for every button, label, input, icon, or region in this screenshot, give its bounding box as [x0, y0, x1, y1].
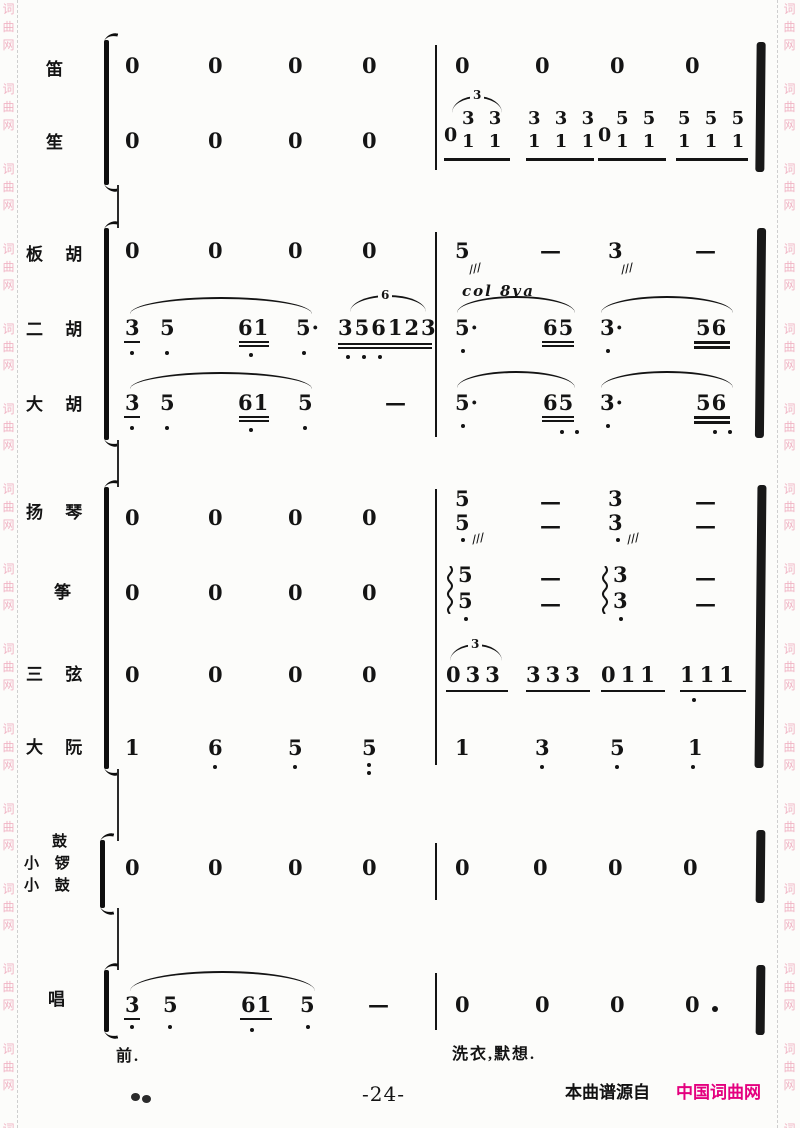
rest-note: 0: [288, 53, 304, 78]
watermark-char: 网: [2, 279, 14, 291]
dash-note: —: [695, 565, 717, 590]
tuplet-number: 6: [378, 288, 392, 302]
instrument-label-xiaogu: 小 鼓: [24, 874, 76, 895]
tuplet-number: 3: [468, 637, 482, 651]
watermark-char: 曲: [783, 181, 795, 193]
watermark-char: 网: [2, 519, 14, 531]
octave-dot: [130, 426, 134, 430]
octave-dot: [606, 349, 610, 353]
watermark-char: 曲: [783, 981, 795, 993]
note: 1: [125, 735, 141, 760]
watermark-char: 网: [2, 599, 14, 611]
rest-note: 0: [288, 580, 304, 605]
chord-top: 3: [613, 562, 629, 587]
barline: [435, 489, 437, 765]
instrument-label-xiaoluo: 小 锣: [24, 852, 76, 873]
system-end-bar: [755, 42, 765, 172]
beam: [542, 345, 574, 347]
beam: [239, 345, 269, 347]
dash-note: —: [540, 513, 562, 538]
watermark-char: 网: [2, 999, 14, 1011]
octave-dot: [346, 355, 350, 359]
watermark-char: 词: [2, 323, 14, 335]
tremolo-mark: ///: [626, 531, 641, 547]
watermark-char: 词: [783, 1043, 795, 1055]
margin-dashed-line-right: [777, 0, 778, 1128]
rest-note: 0: [208, 580, 224, 605]
chord-lead-rest: 0: [444, 124, 458, 146]
rest-note: 0: [533, 855, 549, 880]
score-page: 词曲网词曲网词曲网词曲网词曲网词曲网词曲网词曲网词曲网词曲网词曲网词曲网词曲网词…: [0, 0, 800, 1128]
octave-dot: [367, 763, 371, 767]
augmentation-dot: [712, 1006, 718, 1012]
rest-note: 0: [685, 992, 701, 1017]
octave-dot: [728, 430, 732, 434]
octave-dot: [165, 426, 169, 430]
note: 6: [208, 735, 224, 760]
note: 61: [238, 315, 269, 340]
watermark-char: 词: [2, 723, 14, 735]
instrument-label-banhu: 板 胡: [26, 240, 91, 265]
beam: [601, 690, 665, 692]
note: 356123: [338, 315, 438, 340]
watermark-char: 曲: [783, 661, 795, 673]
watermark-column-left: 词曲网词曲网词曲网词曲网词曲网词曲网词曲网词曲网词曲网词曲网词曲网词曲网词曲网词…: [1, 0, 16, 1128]
octave-dot: [606, 424, 610, 428]
system-connector-line: [117, 908, 119, 970]
dash-note: —: [695, 238, 717, 263]
note: 3·: [600, 315, 624, 340]
system-connector-line: [117, 769, 119, 841]
beam: [338, 343, 432, 345]
beam: [124, 416, 140, 418]
chord-lead-rest: 0: [598, 124, 612, 146]
system-bracket: [104, 487, 109, 769]
rest-note: 0: [362, 505, 378, 530]
margin-dashed-line-left: [17, 0, 18, 1128]
note: 3: [125, 390, 141, 415]
dash-note: —: [385, 390, 407, 415]
beam: [694, 416, 730, 419]
tremolo-mark: ///: [471, 531, 486, 547]
chord-bottom: 1 1 1: [528, 133, 598, 151]
rest-note: 0: [208, 128, 224, 153]
watermark-char: 词: [783, 83, 795, 95]
watermark-char: 网: [2, 919, 14, 931]
rest-note: 0: [288, 855, 304, 880]
chord-bottom: 3: [613, 588, 629, 613]
watermark-char: 曲: [783, 101, 795, 113]
note: 5·: [296, 315, 320, 340]
rest-note: 0: [208, 53, 224, 78]
rest-note: 0: [288, 505, 304, 530]
rest-note: 0: [455, 992, 471, 1017]
octave-dot: [130, 351, 134, 355]
instrument-label-gu: 鼓: [52, 830, 73, 851]
note: 5: [362, 735, 378, 760]
watermark-char: 词: [783, 403, 795, 415]
chord-top: 5 5: [616, 110, 659, 128]
watermark-char: 曲: [783, 1061, 795, 1073]
beam: [676, 158, 748, 161]
watermark-char: 网: [2, 679, 14, 691]
note: 65: [543, 390, 574, 415]
beam: [239, 420, 269, 422]
octave-dot: [165, 351, 169, 355]
chord-bottom: 5: [458, 588, 474, 613]
system-bracket: [104, 228, 109, 440]
watermark-char: 词: [783, 963, 795, 975]
watermark-char: 词: [783, 883, 795, 895]
watermark-char: 曲: [2, 501, 14, 513]
octave-dot: [249, 428, 253, 432]
watermark-char: 网: [2, 199, 14, 211]
chord-top: 5: [458, 562, 474, 587]
note: 3: [608, 238, 624, 263]
chord-top: 5: [455, 486, 471, 511]
beam: [239, 341, 269, 343]
note: 5: [160, 390, 176, 415]
rest-note: 0: [455, 855, 471, 880]
beam: [542, 420, 574, 422]
watermark-char: 词: [783, 3, 795, 15]
rest-note: 0: [125, 128, 141, 153]
octave-dot: [540, 765, 544, 769]
source-prefix: 本曲谱源自: [565, 1078, 650, 1103]
octave-dot: [616, 538, 620, 542]
octave-dot: [168, 1025, 172, 1029]
barline: [435, 973, 437, 1030]
chord-bottom: 3: [608, 510, 624, 535]
system-bracket: [100, 840, 105, 908]
watermark-char: 网: [783, 199, 795, 211]
watermark-char: 曲: [2, 421, 14, 433]
watermark-char: 曲: [783, 501, 795, 513]
beam: [526, 158, 594, 161]
chord-top: 3 3: [462, 110, 505, 128]
beam: [694, 346, 730, 349]
watermark-char: 曲: [2, 101, 14, 113]
watermark-char: 曲: [783, 741, 795, 753]
watermark-column-right: 词曲网词曲网词曲网词曲网词曲网词曲网词曲网词曲网词曲网词曲网词曲网词曲网词曲网词…: [782, 0, 797, 1128]
beam: [542, 416, 574, 418]
note: 5·: [455, 390, 479, 415]
rest-note: 0: [362, 580, 378, 605]
instrument-label-sanxian: 三 弦: [26, 660, 91, 685]
watermark-char: 词: [2, 883, 14, 895]
slur: [130, 372, 312, 389]
watermark-char: 词: [783, 803, 795, 815]
rest-note: 0: [208, 238, 224, 263]
octave-dot: [691, 765, 695, 769]
watermark-char: 曲: [783, 421, 795, 433]
dash-note: —: [695, 489, 717, 514]
note: 56: [696, 390, 727, 415]
dash-note: —: [695, 591, 717, 616]
lyric-text: 洗衣,默想.: [452, 1040, 536, 1064]
watermark-char: 词: [783, 323, 795, 335]
arpeggio-mark: [446, 566, 454, 614]
watermark-char: 曲: [2, 581, 14, 593]
watermark-char: 词: [783, 483, 795, 495]
note: 3: [535, 735, 551, 760]
note: 65: [543, 315, 574, 340]
rest-note: 0: [208, 662, 224, 687]
dash-note: —: [540, 591, 562, 616]
chord-bottom: 1 1: [616, 133, 659, 151]
note: 3: [125, 992, 141, 1017]
watermark-char: 网: [783, 279, 795, 291]
chord-top: 3: [608, 486, 624, 511]
note: 1: [688, 735, 704, 760]
note: 111: [680, 662, 739, 687]
instrument-label-sheng: 笙: [46, 128, 72, 153]
note: 033: [446, 662, 505, 687]
watermark-char: 词: [2, 803, 14, 815]
watermark-char: 网: [2, 839, 14, 851]
rest-note: 0: [362, 128, 378, 153]
rest-note: 0: [362, 238, 378, 263]
octave-dot: [303, 426, 307, 430]
rest-note: 0: [125, 580, 141, 605]
beam: [240, 1018, 272, 1020]
watermark-char: 曲: [2, 901, 14, 913]
instrument-label-di: 笛: [46, 55, 72, 80]
system-bracket: [104, 970, 109, 1032]
print-smudge: [142, 1095, 151, 1103]
chord-bottom: 5: [455, 510, 471, 535]
rest-note: 0: [455, 53, 471, 78]
tremolo-mark: ///: [620, 261, 635, 277]
watermark-char: 曲: [783, 821, 795, 833]
watermark-char: 词: [2, 243, 14, 255]
dash-note: —: [540, 489, 562, 514]
dash-note: —: [540, 565, 562, 590]
tremolo-mark: ///: [468, 261, 483, 277]
watermark-char: 词: [2, 963, 14, 975]
watermark-char: 曲: [783, 261, 795, 273]
note: 5: [610, 735, 626, 760]
octave-dot: [615, 765, 619, 769]
rest-note: 0: [362, 53, 378, 78]
watermark-char: 曲: [783, 341, 795, 353]
watermark-char: 词: [2, 163, 14, 175]
rest-note: 0: [683, 855, 699, 880]
watermark-char: 词: [783, 643, 795, 655]
system-end-bar: [756, 830, 766, 903]
instrument-label-zheng: 筝: [54, 578, 80, 603]
watermark-char: 词: [2, 3, 14, 15]
rest-note: 0: [125, 53, 141, 78]
note: 333: [526, 662, 585, 687]
watermark-char: 曲: [2, 261, 14, 273]
watermark-char: 词: [783, 723, 795, 735]
note: 011: [601, 662, 660, 687]
beam: [444, 158, 510, 161]
lyric-text: 前.: [116, 1042, 140, 1066]
chord-bottom: 1 1 1: [678, 133, 748, 151]
note: 5: [298, 390, 314, 415]
watermark-char: 网: [783, 439, 795, 451]
watermark-char: 网: [783, 119, 795, 131]
watermark-char: 网: [783, 1079, 795, 1091]
watermark-char: 词: [783, 563, 795, 575]
octave-dot: [560, 430, 564, 434]
watermark-char: 曲: [783, 581, 795, 593]
watermark-char: 网: [2, 39, 14, 51]
octave-dot: [362, 355, 366, 359]
octave-dot: [575, 430, 579, 434]
watermark-char: 词: [783, 163, 795, 175]
watermark-char: 网: [783, 839, 795, 851]
watermark-char: 网: [783, 599, 795, 611]
beam: [680, 690, 746, 692]
octave-dot: [461, 538, 465, 542]
note: 5: [163, 992, 179, 1017]
rest-note: 0: [125, 855, 141, 880]
beam: [124, 1018, 140, 1020]
note: 61: [238, 390, 269, 415]
chord-top: 5 5 5: [678, 110, 748, 128]
barline: [435, 843, 437, 900]
system-bracket: [104, 40, 109, 185]
octave-dot: [213, 765, 217, 769]
chord-bottom: 1 1: [462, 133, 505, 151]
instrument-label-yangqin: 扬 琴: [26, 498, 91, 523]
note: 5·: [455, 315, 479, 340]
watermark-char: 曲: [2, 21, 14, 33]
page-number: -24-: [362, 1082, 405, 1106]
rest-note: 0: [208, 505, 224, 530]
dash-note: —: [368, 992, 390, 1017]
instrument-label-daruan: 大 阮: [26, 733, 91, 758]
watermark-char: 曲: [2, 341, 14, 353]
watermark-char: 曲: [2, 661, 14, 673]
beam: [694, 341, 730, 344]
print-smudge: [131, 1093, 140, 1101]
watermark-char: 网: [2, 359, 14, 371]
note: 1: [455, 735, 471, 760]
watermark-char: 网: [2, 119, 14, 131]
arpeggio-mark: [601, 566, 609, 614]
watermark-char: 词: [2, 1043, 14, 1055]
watermark-char: 词: [2, 563, 14, 575]
note: 61: [241, 992, 272, 1017]
system-end-bar: [756, 965, 766, 1035]
watermark-char: 网: [783, 919, 795, 931]
octave-dot: [306, 1025, 310, 1029]
rest-note: 0: [288, 128, 304, 153]
slur: [130, 297, 312, 314]
note: 5: [455, 238, 471, 263]
watermark-char: 网: [783, 519, 795, 531]
octave-dot: [249, 353, 253, 357]
watermark-char: 曲: [2, 741, 14, 753]
source-site-link[interactable]: 中国词曲网: [676, 1078, 761, 1103]
rest-note: 0: [535, 992, 551, 1017]
watermark-char: 网: [2, 1079, 14, 1091]
octave-dot: [367, 771, 371, 775]
watermark-char: 网: [2, 759, 14, 771]
note: 5: [288, 735, 304, 760]
note: 3: [125, 315, 141, 340]
watermark-char: 词: [2, 643, 14, 655]
watermark-char: 词: [783, 243, 795, 255]
watermark-char: 词: [2, 483, 14, 495]
octave-dot: [130, 1025, 134, 1029]
watermark-char: 网: [783, 39, 795, 51]
tuplet-number: 3: [470, 88, 484, 102]
beam: [694, 421, 730, 424]
rest-note: 0: [362, 855, 378, 880]
note: 5: [160, 315, 176, 340]
rest-note: 0: [288, 238, 304, 263]
watermark-char: 网: [2, 439, 14, 451]
beam: [526, 690, 590, 692]
rest-note: 0: [125, 238, 141, 263]
octave-dot: [713, 430, 717, 434]
octave-dot: [619, 617, 623, 621]
instrument-label-vocal: 唱: [48, 985, 74, 1010]
watermark-char: 曲: [2, 1061, 14, 1073]
system-end-bar: [755, 228, 766, 438]
watermark-char: 词: [2, 1123, 14, 1128]
watermark-char: 曲: [783, 21, 795, 33]
beam: [598, 158, 666, 161]
octave-dot: [250, 1028, 254, 1032]
watermark-char: 曲: [783, 901, 795, 913]
octave-dot: [293, 765, 297, 769]
watermark-char: 网: [783, 999, 795, 1011]
rest-note: 0: [288, 662, 304, 687]
note: 56: [696, 315, 727, 340]
octave-dot: [692, 698, 696, 702]
watermark-char: 曲: [2, 981, 14, 993]
instrument-label-erhu: 二 胡: [26, 315, 91, 340]
dash-note: —: [540, 238, 562, 263]
beam: [239, 416, 269, 418]
slur: [130, 971, 315, 991]
rest-note: 0: [685, 53, 701, 78]
rest-note: 0: [535, 53, 551, 78]
rest-note: 0: [608, 855, 624, 880]
slur: [601, 371, 733, 388]
note: 5: [300, 992, 316, 1017]
watermark-char: 词: [783, 1123, 795, 1128]
system-end-bar: [755, 485, 767, 768]
watermark-char: 词: [2, 83, 14, 95]
octave-dot: [461, 424, 465, 428]
watermark-char: 词: [2, 403, 14, 415]
beam: [446, 690, 508, 692]
octave-dot: [461, 349, 465, 353]
instrument-label-dahu: 大 胡: [26, 390, 91, 415]
beam: [124, 341, 140, 343]
chord-top: 3 3 3: [528, 110, 598, 128]
rest-note: 0: [208, 855, 224, 880]
rest-note: 0: [610, 992, 626, 1017]
watermark-char: 网: [783, 759, 795, 771]
watermark-char: 曲: [2, 181, 14, 193]
octave-dot: [302, 351, 306, 355]
rest-note: 0: [125, 662, 141, 687]
note: 3·: [600, 390, 624, 415]
slur: [457, 371, 575, 388]
rest-note: 0: [125, 505, 141, 530]
watermark-char: 网: [783, 679, 795, 691]
watermark-char: 网: [783, 359, 795, 371]
octave-dot: [378, 355, 382, 359]
